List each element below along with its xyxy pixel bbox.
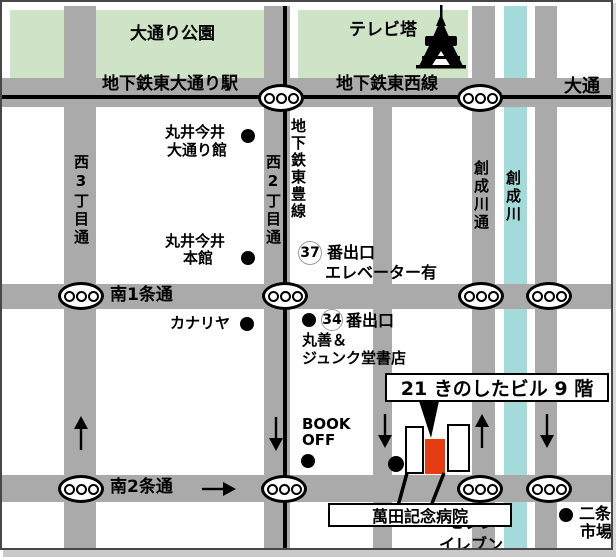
- nijo-market-label-line1: 二条: [579, 505, 611, 523]
- tozai-subway-line: [2, 95, 613, 99]
- minami2-label: 南2条通: [110, 478, 173, 498]
- subway-station-icon: [261, 475, 307, 503]
- one-way-down-arrow-icon: [377, 414, 393, 448]
- book-off-dot: [301, 454, 315, 468]
- nishi2-label: 西2丁目通: [265, 154, 280, 247]
- exit-37-number-icon: 37: [298, 241, 322, 265]
- exit-37-label: 番出口: [327, 244, 375, 262]
- subway-station-icon: [457, 84, 503, 112]
- callout-pointer: [409, 400, 449, 440]
- odori-park-block: [96, 10, 270, 80]
- exit-37-elevator-note: エレベーター有: [325, 264, 437, 282]
- park-block-west: [10, 10, 64, 80]
- access-map: 大通り公園 テレビ塔 地下鉄東大通り駅 地下鉄東西線 大通 南1条通 南2条通 …: [0, 0, 616, 557]
- exit-34-dot: [302, 313, 316, 327]
- one-way-up-arrow-icon: [73, 416, 89, 450]
- maruzen-label-line2: ジュンク堂書店: [302, 350, 406, 367]
- subway-station-icon: [58, 282, 104, 310]
- nijo-market-label-line2: 市場: [580, 523, 612, 541]
- odori-park-label: 大通り公園: [130, 25, 215, 45]
- road-odori-avenue: [2, 78, 613, 107]
- marui-odorikan-label-line2: 大通り館: [167, 142, 227, 159]
- tozai-line-label: 地下鉄東西線: [336, 75, 438, 95]
- maruzen-label-line1: 丸善＆: [302, 332, 347, 349]
- destination-callout: 21 きのしたビル 9 階: [385, 373, 609, 402]
- odori-station-label: 地下鉄東大通り駅: [102, 75, 238, 95]
- sosei-river-label: 創成川: [505, 170, 520, 224]
- one-way-right-arrow-icon: [202, 481, 236, 497]
- subway-station-icon: [262, 282, 308, 310]
- subway-station-icon: [457, 475, 503, 503]
- manda-hospital-label: 萬田記念病院: [328, 503, 512, 527]
- marui-honkan-label-line2: 本館: [183, 250, 213, 267]
- kanariya-dot: [240, 317, 254, 331]
- map-canvas: 大通り公園 テレビ塔 地下鉄東大通り駅 地下鉄東西線 大通 南1条通 南2条通 …: [0, 0, 613, 550]
- seven-eleven-label-line2: イレブン: [439, 536, 503, 550]
- subway-station-icon: [526, 282, 572, 310]
- map-bottom-shadow: [3, 550, 616, 557]
- marui-odorikan-dot: [241, 129, 255, 143]
- book-off-label-line2: OFF: [302, 432, 335, 449]
- toho-line-label: 地下鉄東豊線: [290, 118, 305, 220]
- nijo-market-dot: [559, 508, 573, 522]
- tv-tower-label: テレビ塔: [349, 21, 417, 41]
- nishi3-label: 西3丁目通: [73, 154, 88, 247]
- one-way-down-arrow-icon: [268, 417, 284, 451]
- one-way-down-arrow-icon: [539, 414, 555, 448]
- exit-34-number-icon: 34: [321, 309, 343, 331]
- minami1-label: 南1条通: [110, 286, 173, 306]
- exit-34-label: 番出口: [346, 312, 394, 330]
- odori-avenue-label: 大通: [564, 77, 600, 98]
- marui-honkan-dot: [241, 251, 255, 265]
- tv-tower-icon: [412, 5, 470, 69]
- marui-odorikan-label-line1: 丸井今井: [165, 124, 225, 141]
- one-way-up-arrow-icon: [474, 414, 490, 448]
- soseigawa-dori-label: 創成川通: [473, 160, 488, 232]
- subway-station-icon: [58, 475, 104, 503]
- marui-honkan-label-line1: 丸井今井: [165, 233, 225, 250]
- subway-station-icon: [526, 475, 572, 503]
- kanariya-label: カナリヤ: [170, 315, 230, 332]
- subway-station-icon: [258, 84, 304, 112]
- subway-station-icon: [458, 282, 504, 310]
